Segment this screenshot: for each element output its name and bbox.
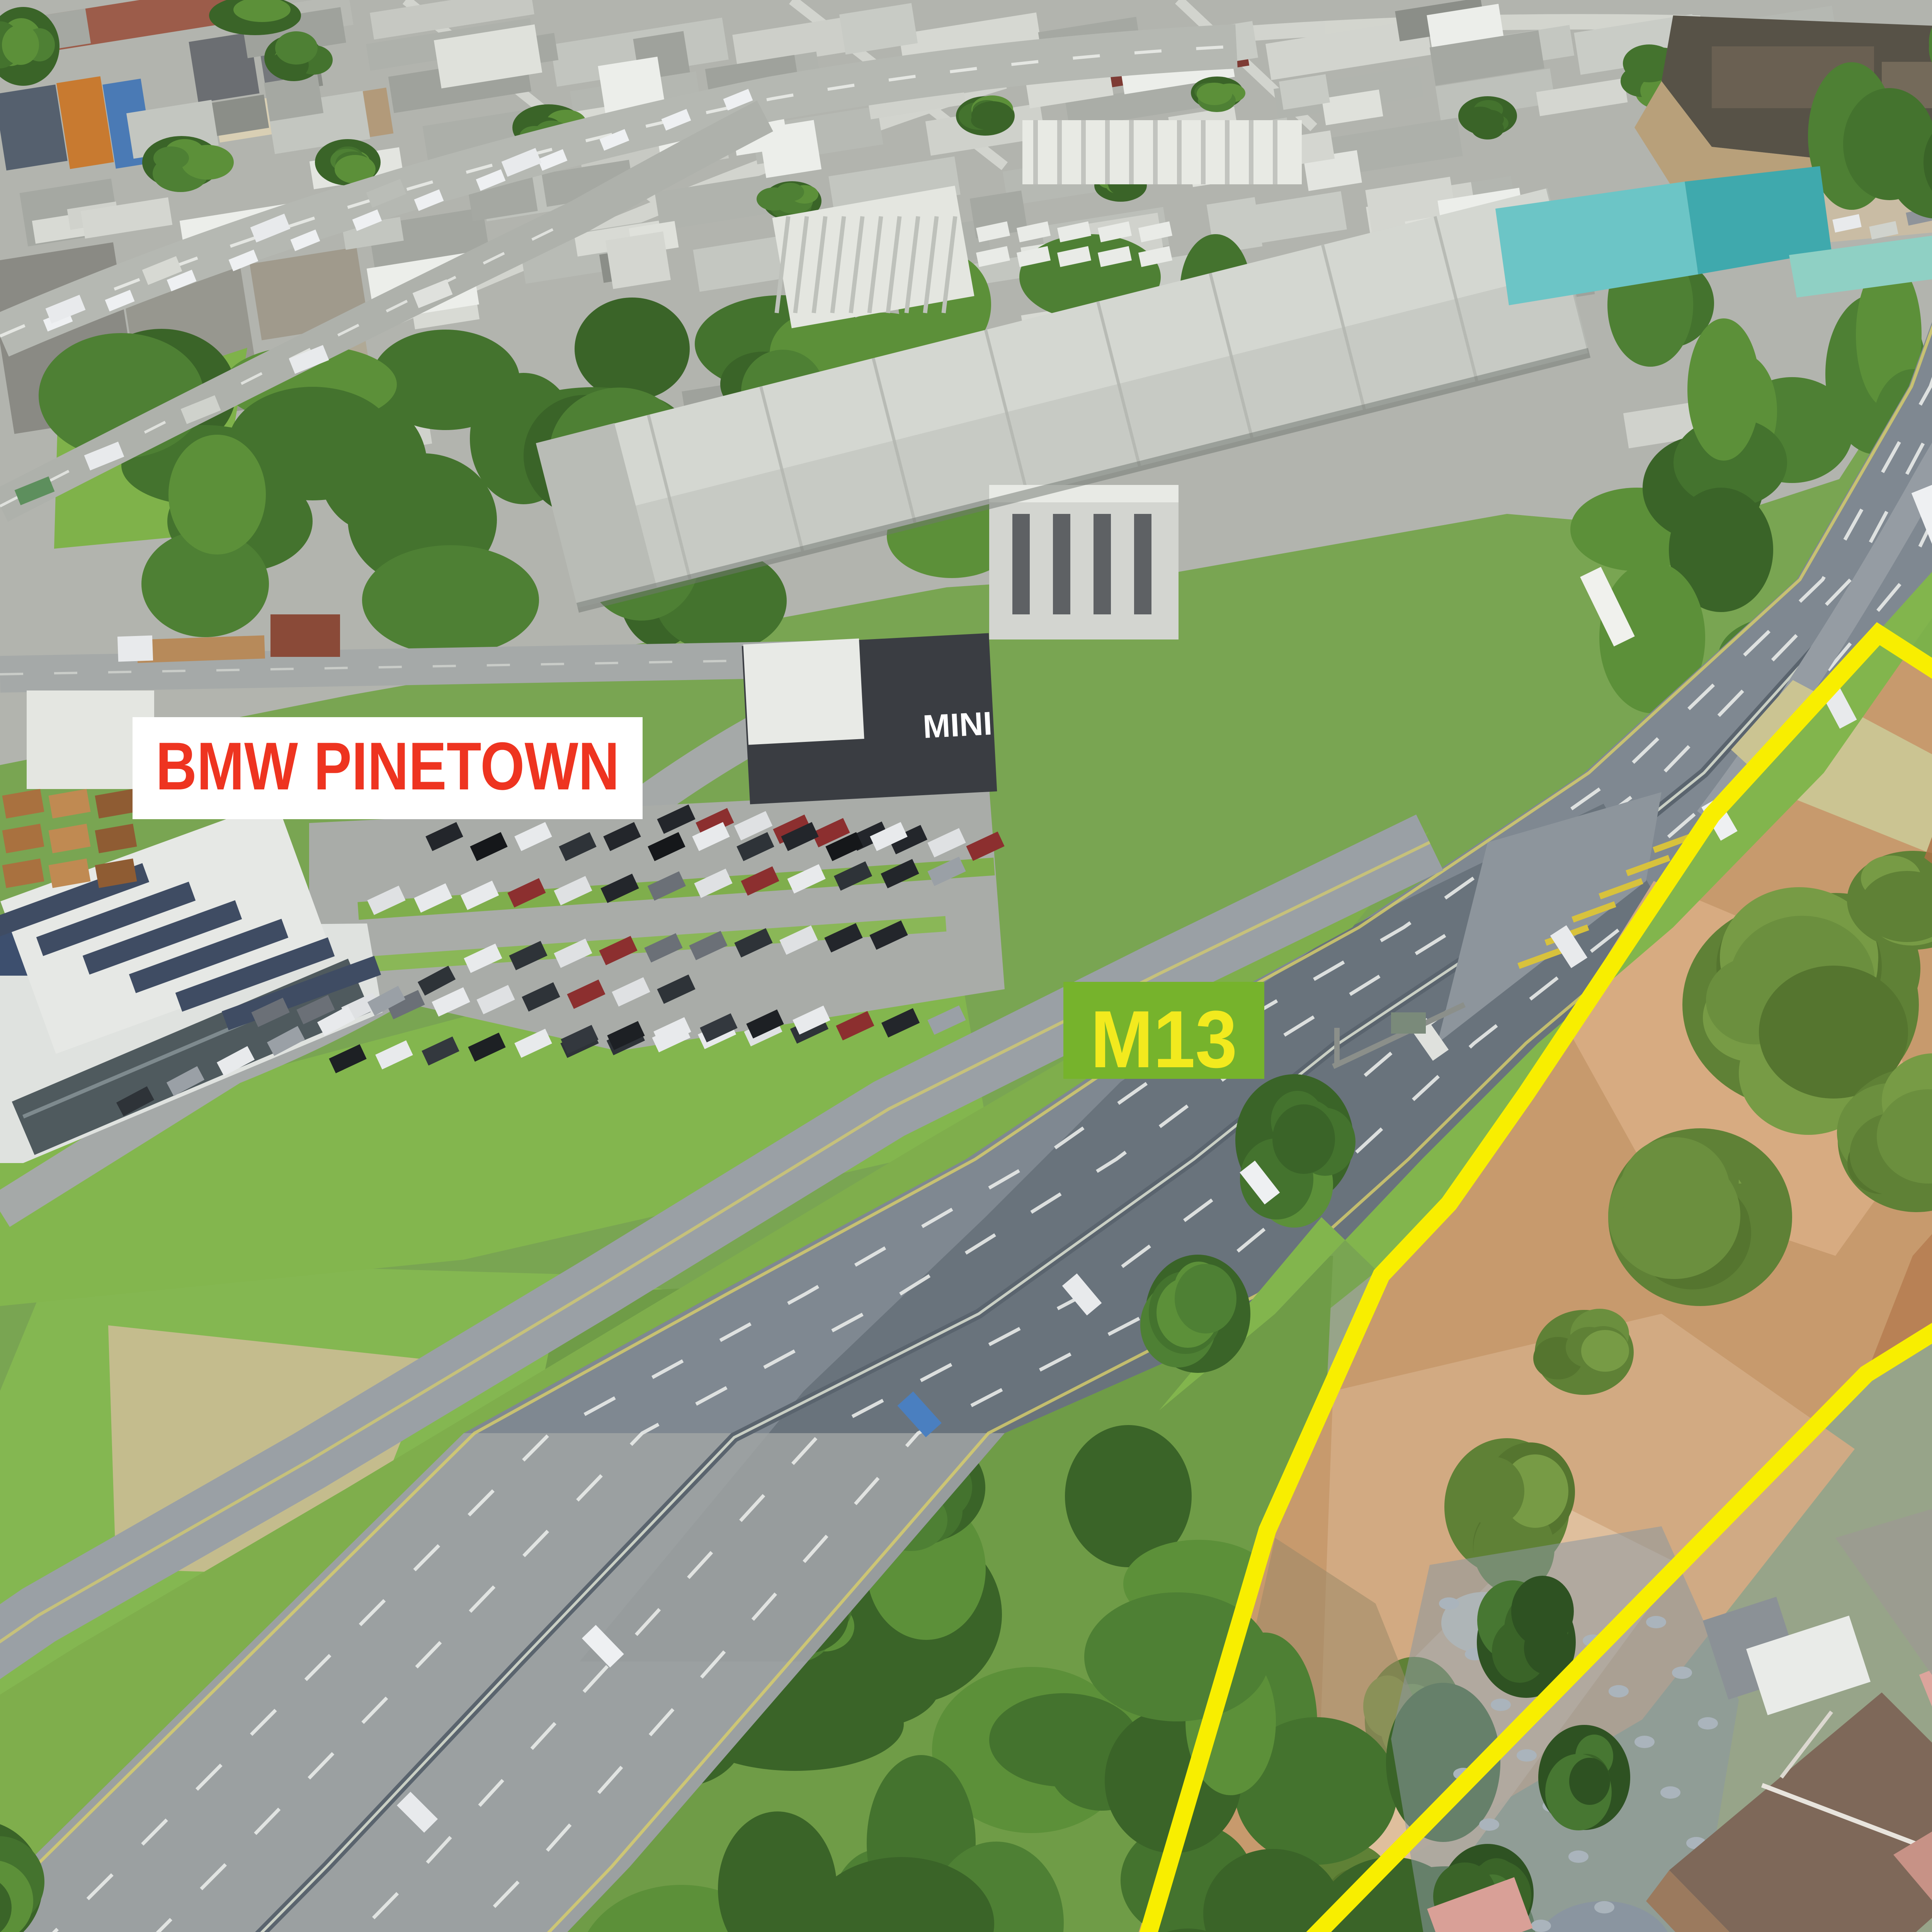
svg-text:M13: M13 — [1090, 994, 1237, 1085]
svg-text:MINI: MINI — [922, 705, 993, 745]
svg-text:BMW PINETOWN: BMW PINETOWN — [156, 729, 619, 804]
